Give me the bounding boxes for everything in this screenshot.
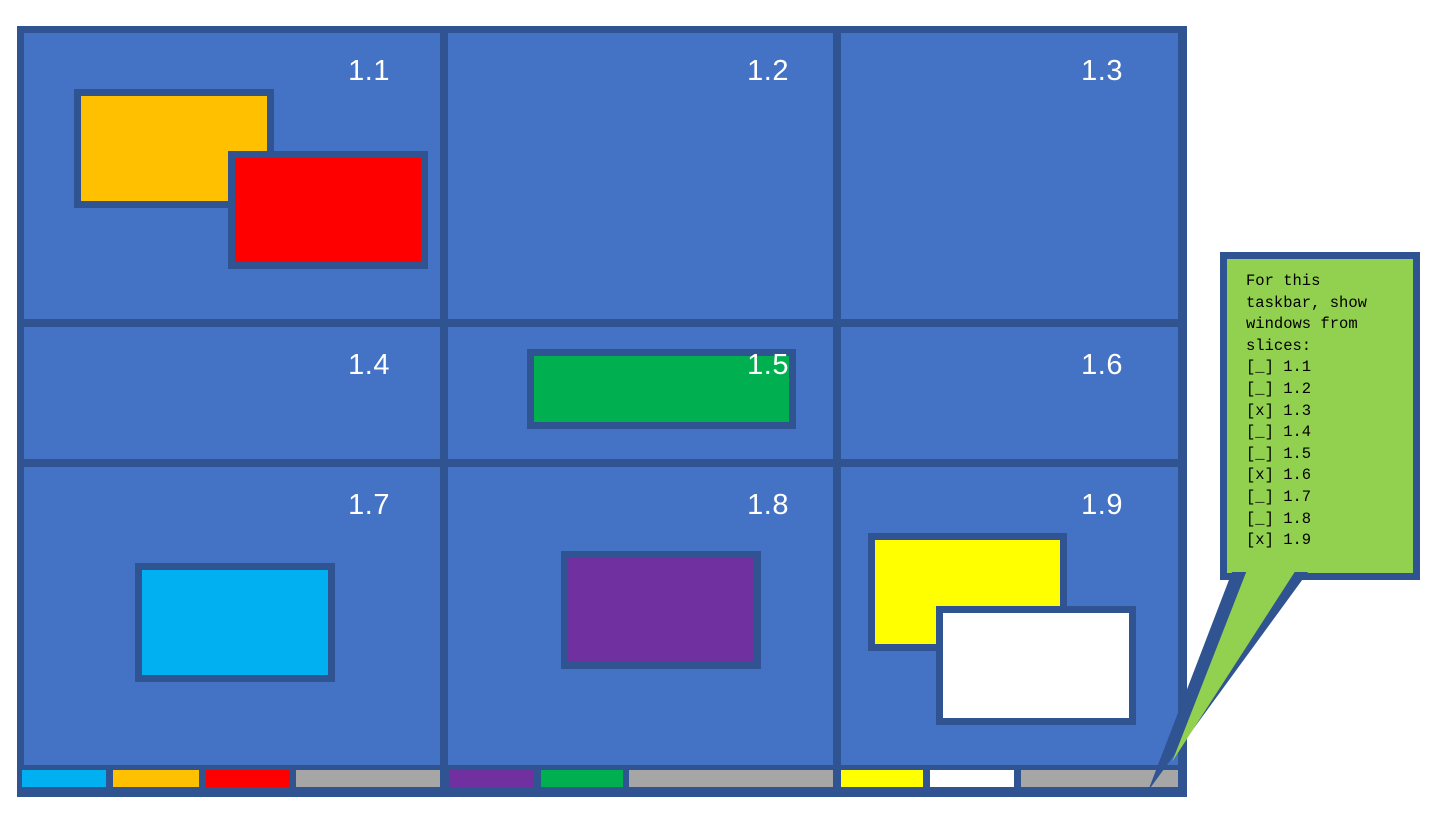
taskbar-empty-segment-2 — [629, 770, 833, 787]
slice-1-3: 1.3 — [841, 33, 1178, 319]
slice-label-1-8: 1.8 — [747, 489, 789, 522]
callout-checkbox-1-6[interactable]: [x] 1.6 — [1246, 465, 1413, 487]
window-cyan[interactable] — [135, 563, 335, 682]
callout-prompt-line-1: For this — [1246, 271, 1413, 293]
window-white[interactable] — [936, 606, 1136, 725]
slice-1-6: 1.6 — [841, 327, 1178, 459]
window-red[interactable] — [228, 151, 428, 269]
canvas: 1.1 1.2 1.3 1.4 1.5 1.6 1.7 1.8 1.9 For … — [0, 0, 1435, 814]
callout-prompt-line-4: slices: — [1246, 336, 1413, 358]
callout-checkbox-1-7[interactable]: [_] 1.7 — [1246, 487, 1413, 509]
taskbar-empty-segment-3 — [1021, 770, 1178, 787]
taskbar-button-white[interactable] — [930, 770, 1014, 787]
slice-label-1-7: 1.7 — [348, 489, 390, 522]
slice-1-4: 1.4 — [24, 327, 440, 459]
slice-label-1-6: 1.6 — [1081, 349, 1123, 382]
taskbar-button-yellow[interactable] — [841, 770, 923, 787]
slice-1-2: 1.2 — [448, 33, 833, 319]
callout: For this taskbar, show windows from slic… — [1220, 252, 1420, 580]
callout-tail-fill — [1172, 570, 1296, 762]
taskbar-button-orange[interactable] — [113, 770, 199, 787]
callout-checkbox-1-5[interactable]: [_] 1.5 — [1246, 444, 1413, 466]
callout-checkbox-1-3[interactable]: [x] 1.3 — [1246, 401, 1413, 423]
slice-label-1-3: 1.3 — [1081, 55, 1123, 88]
slice-label-1-2: 1.2 — [747, 55, 789, 88]
callout-checkbox-1-4[interactable]: [_] 1.4 — [1246, 422, 1413, 444]
slice-label-1-4: 1.4 — [348, 349, 390, 382]
callout-checkbox-1-1[interactable]: [_] 1.1 — [1246, 357, 1413, 379]
callout-checkbox-1-2[interactable]: [_] 1.2 — [1246, 379, 1413, 401]
slice-label-1-9: 1.9 — [1081, 489, 1123, 522]
taskbar-button-purple[interactable] — [450, 770, 533, 787]
callout-checkbox-1-8[interactable]: [_] 1.8 — [1246, 509, 1413, 531]
callout-prompt-line-3: windows from — [1246, 314, 1413, 336]
slice-label-1-1: 1.1 — [348, 55, 390, 88]
callout-checkbox-1-9[interactable]: [x] 1.9 — [1246, 530, 1413, 552]
taskbar-empty-segment-1 — [296, 770, 440, 787]
taskbar-button-red[interactable] — [206, 770, 290, 787]
taskbar-button-green[interactable] — [541, 770, 623, 787]
taskbar-button-cyan[interactable] — [22, 770, 106, 787]
slice-label-1-5: 1.5 — [747, 349, 789, 382]
callout-prompt-line-2: taskbar, show — [1246, 293, 1413, 315]
window-purple[interactable] — [561, 551, 761, 669]
